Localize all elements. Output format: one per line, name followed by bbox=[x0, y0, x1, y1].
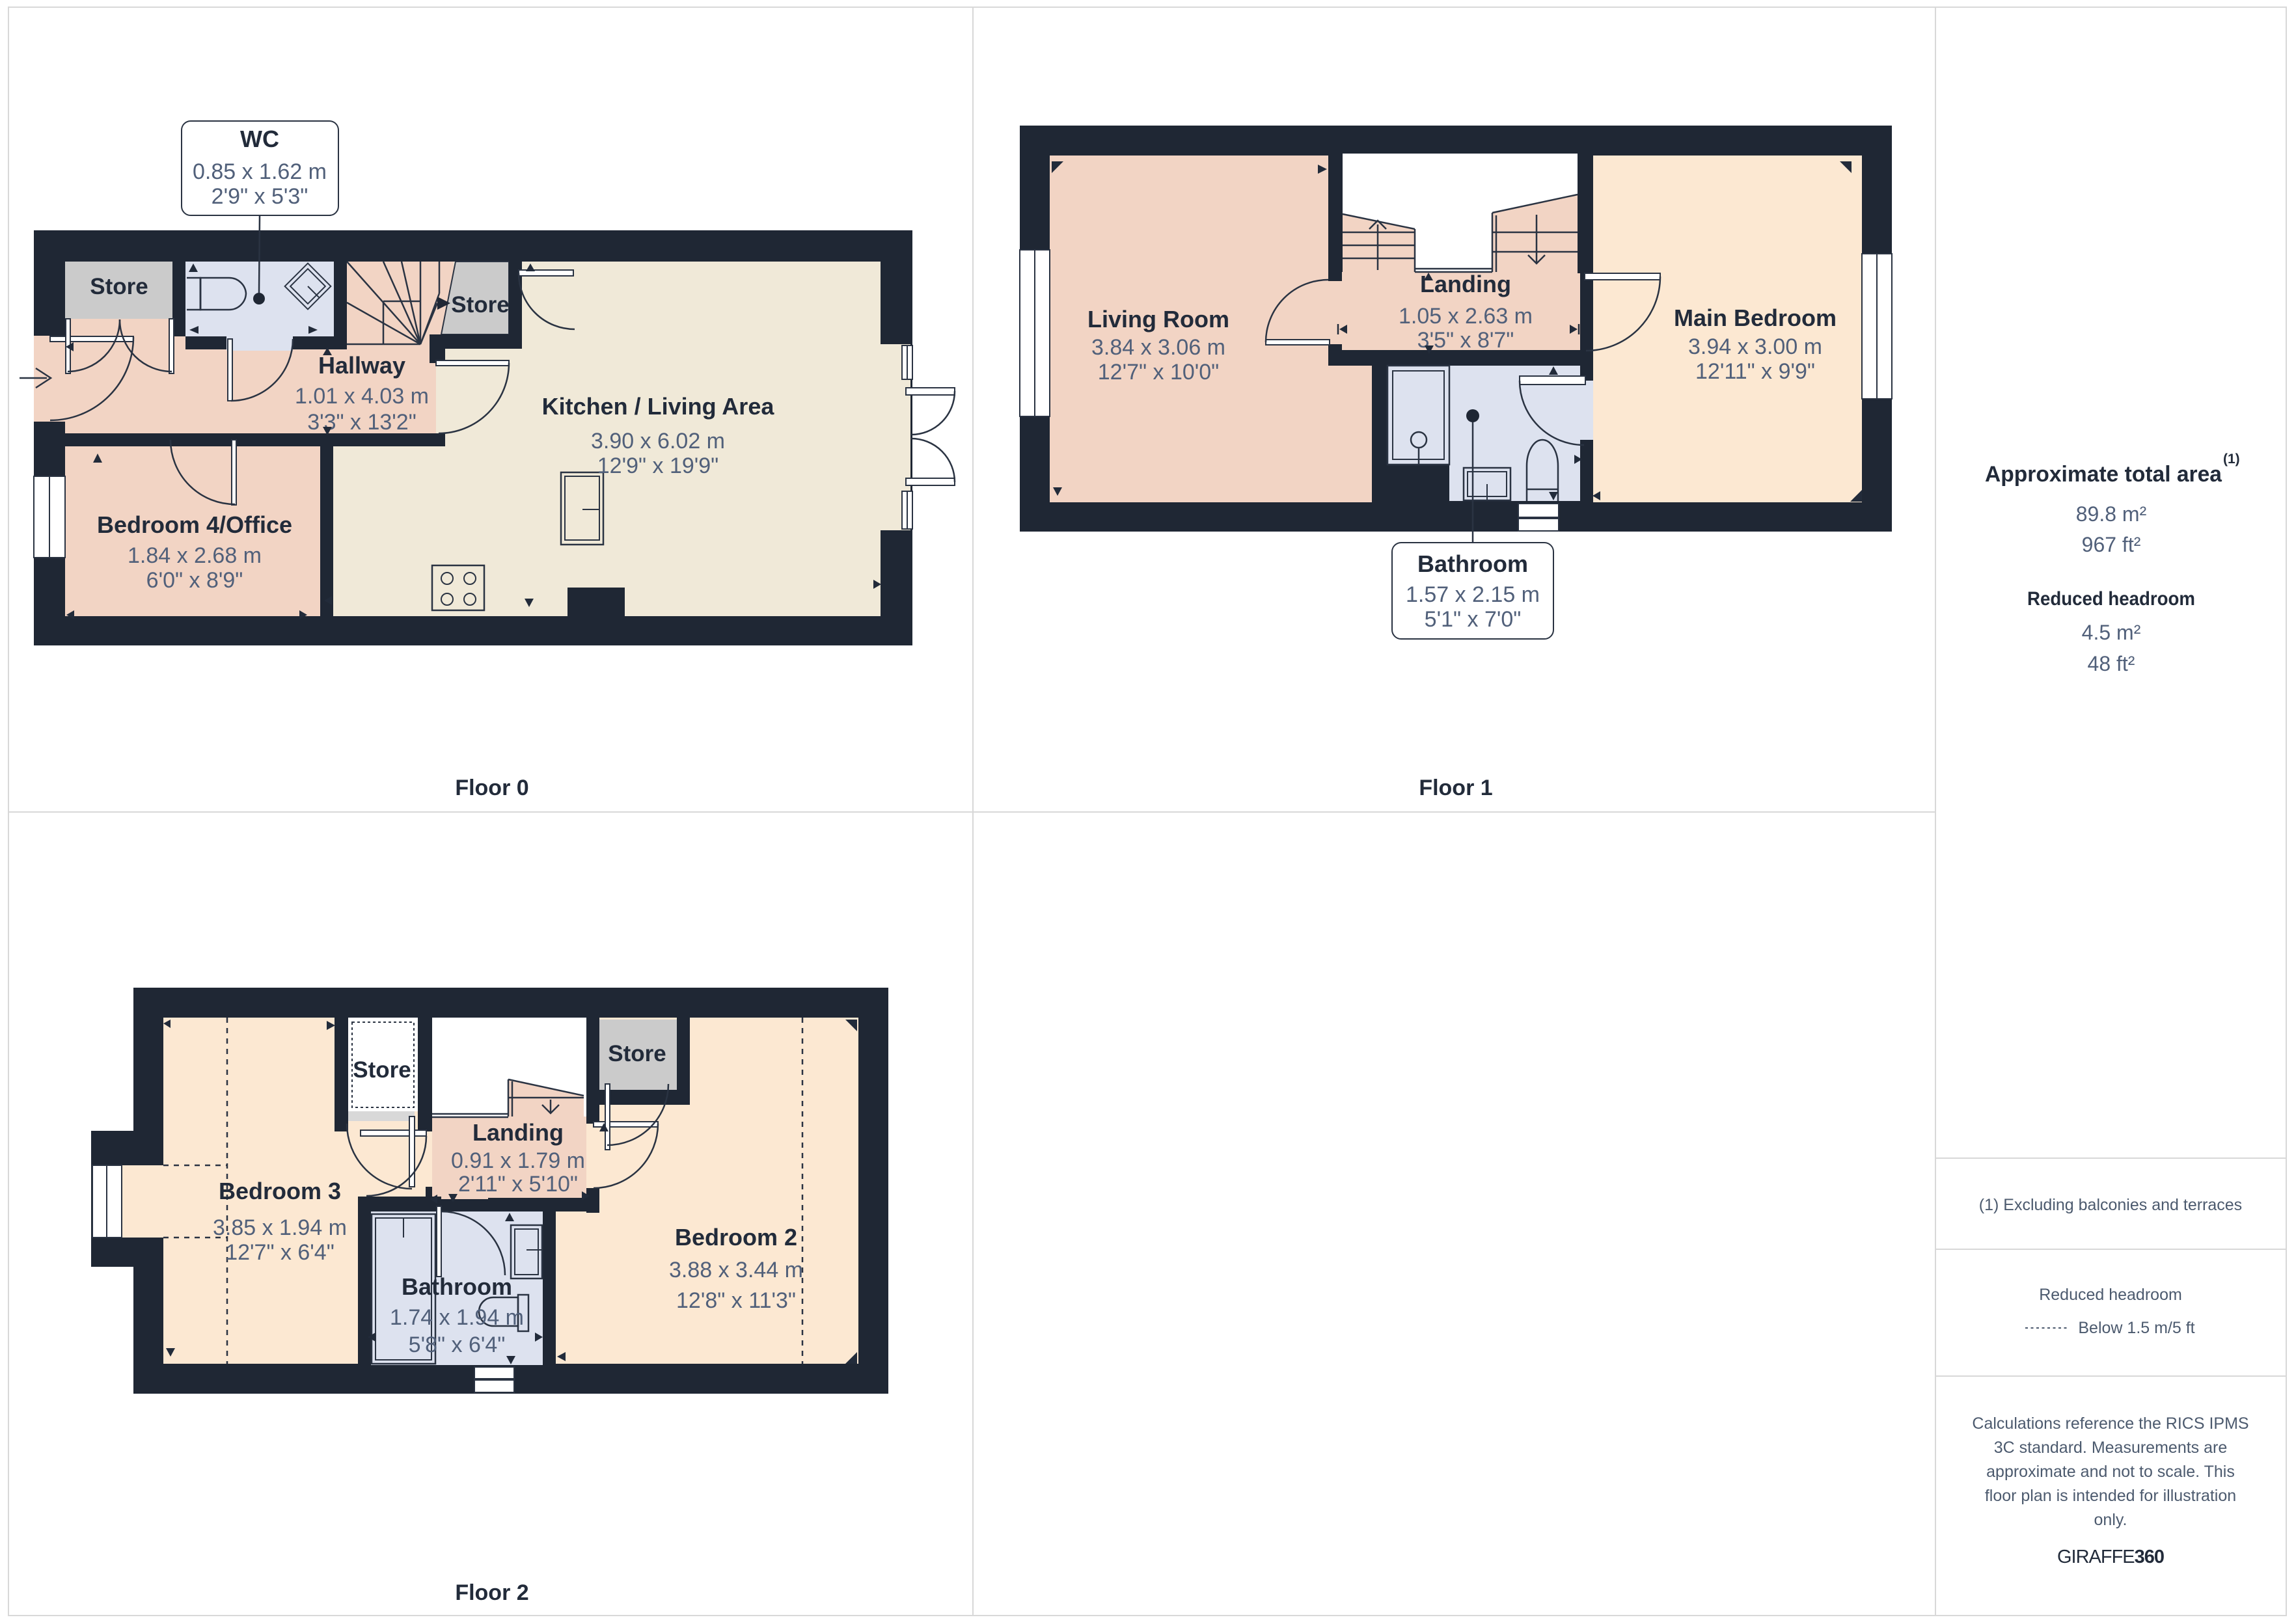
svg-text:12'7" x 6'4": 12'7" x 6'4" bbox=[225, 1240, 335, 1265]
svg-text:Store: Store bbox=[451, 292, 509, 318]
svg-text:48 ft²: 48 ft² bbox=[2088, 652, 2135, 675]
svg-text:Floor 0: Floor 0 bbox=[455, 776, 528, 800]
svg-text:Main Bedroom: Main Bedroom bbox=[1674, 304, 1837, 331]
svg-text:floor plan is intended for ill: floor plan is intended for illustration bbox=[1985, 1487, 2236, 1505]
svg-text:GIRAFFE360: GIRAFFE360 bbox=[2057, 1547, 2164, 1567]
svg-text:5'8" x 6'4": 5'8" x 6'4" bbox=[409, 1333, 506, 1357]
svg-text:2'11" x 5'10": 2'11" x 5'10" bbox=[458, 1172, 578, 1197]
svg-text:only.: only. bbox=[2094, 1511, 2127, 1529]
svg-text:Bedroom 4/Office: Bedroom 4/Office bbox=[97, 511, 292, 538]
svg-text:Bathroom: Bathroom bbox=[1417, 550, 1528, 577]
svg-text:(1) Excluding balconies and te: (1) Excluding balconies and terraces bbox=[1979, 1196, 2242, 1214]
svg-text:3'3" x 13'2": 3'3" x 13'2" bbox=[307, 410, 417, 435]
svg-text:1.05 x 2.63 m: 1.05 x 2.63 m bbox=[1399, 304, 1533, 329]
svg-text:Bathroom: Bathroom bbox=[402, 1273, 512, 1300]
svg-text:Store: Store bbox=[353, 1057, 411, 1083]
svg-text:Store: Store bbox=[90, 274, 148, 299]
svg-text:3.94 x 3.00 m: 3.94 x 3.00 m bbox=[1688, 334, 1822, 359]
svg-text:Floor 2: Floor 2 bbox=[455, 1580, 528, 1605]
svg-text:2'9" x 5'3": 2'9" x 5'3" bbox=[212, 184, 308, 209]
svg-text:(1): (1) bbox=[2223, 452, 2240, 467]
svg-text:Kitchen / Living Area: Kitchen / Living Area bbox=[542, 393, 775, 420]
svg-text:Landing: Landing bbox=[1420, 271, 1511, 297]
svg-text:4.5 m²: 4.5 m² bbox=[2082, 621, 2141, 644]
svg-text:Bedroom 2: Bedroom 2 bbox=[675, 1224, 797, 1251]
svg-text:3.84 x 3.06 m: 3.84 x 3.06 m bbox=[1091, 335, 1225, 360]
svg-text:Calculations reference the RIC: Calculations reference the RICS IPMS bbox=[1972, 1414, 2248, 1433]
svg-text:approximate and not to scale.: approximate and not to scale. This bbox=[1986, 1463, 2235, 1481]
svg-text:Reduced headroom: Reduced headroom bbox=[2039, 1286, 2182, 1304]
svg-text:12'9" x 19'9": 12'9" x 19'9" bbox=[597, 453, 718, 478]
svg-text:Approximate total area: Approximate total area bbox=[1985, 462, 2222, 487]
svg-text:0.91 x 1.79 m: 0.91 x 1.79 m bbox=[451, 1148, 585, 1173]
svg-text:Floor 1: Floor 1 bbox=[1419, 776, 1492, 800]
svg-text:WC: WC bbox=[240, 126, 279, 152]
svg-text:12'11" x 9'9": 12'11" x 9'9" bbox=[1695, 359, 1815, 384]
svg-text:Living Room: Living Room bbox=[1087, 306, 1229, 332]
svg-text:5'1" x 7'0": 5'1" x 7'0" bbox=[1425, 607, 1522, 632]
svg-text:12'8" x 11'3": 12'8" x 11'3" bbox=[676, 1288, 796, 1313]
svg-text:3.85 x 1.94 m: 3.85 x 1.94 m bbox=[213, 1215, 347, 1240]
svg-text:Hallway: Hallway bbox=[318, 352, 405, 379]
svg-text:Bedroom 3: Bedroom 3 bbox=[219, 1178, 341, 1204]
svg-text:Reduced headroom: Reduced headroom bbox=[2027, 588, 2195, 610]
svg-text:0.85 x 1.62 m: 0.85 x 1.62 m bbox=[193, 159, 327, 184]
svg-text:89.8 m²: 89.8 m² bbox=[2076, 502, 2147, 526]
svg-text:1.74 x 1.94 m: 1.74 x 1.94 m bbox=[390, 1305, 524, 1330]
svg-text:1.57 x 2.15 m: 1.57 x 2.15 m bbox=[1406, 582, 1540, 607]
svg-text:3.90 x 6.02 m: 3.90 x 6.02 m bbox=[591, 429, 725, 453]
svg-text:3.88 x 3.44 m: 3.88 x 3.44 m bbox=[669, 1258, 803, 1282]
svg-text:3C standard. Measurements are: 3C standard. Measurements are bbox=[1994, 1439, 2228, 1457]
svg-text:12'7" x 10'0": 12'7" x 10'0" bbox=[1098, 360, 1219, 385]
svg-text:Store: Store bbox=[608, 1041, 666, 1066]
svg-text:967 ft²: 967 ft² bbox=[2082, 533, 2141, 556]
svg-text:1.01 x 4.03 m: 1.01 x 4.03 m bbox=[295, 384, 429, 409]
svg-text:6'0" x 8'9": 6'0" x 8'9" bbox=[146, 568, 243, 593]
svg-text:Below 1.5 m/5 ft: Below 1.5 m/5 ft bbox=[2078, 1319, 2194, 1337]
svg-text:Landing: Landing bbox=[472, 1119, 564, 1146]
svg-text:1.84 x 2.68 m: 1.84 x 2.68 m bbox=[128, 543, 262, 568]
